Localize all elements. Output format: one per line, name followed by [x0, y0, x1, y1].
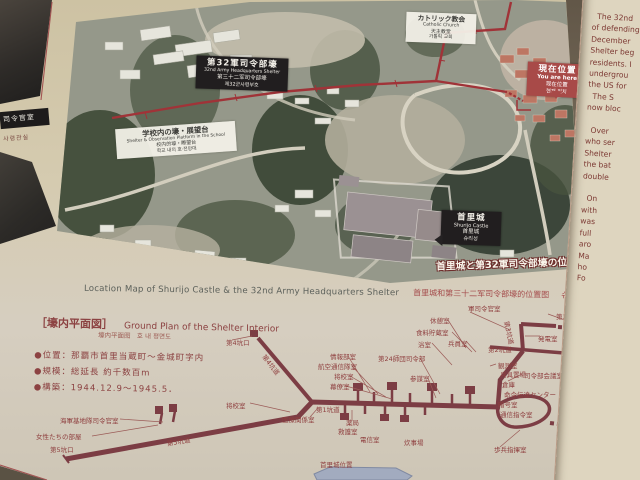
plan-label: 女性たちの部屋	[36, 431, 82, 441]
plan-label: 歩兵指揮室	[494, 444, 527, 454]
hq-shelter-label: 第32軍司令部壕 32nd Army Headquarters Shelter …	[195, 55, 288, 91]
castle-footprint-shape	[314, 467, 412, 480]
church-label-kr: 가톨릭 교회	[408, 34, 474, 42]
plan-label: 海軍基地隊司令官室	[60, 415, 119, 425]
plan-label: 命令伝達センター	[504, 389, 556, 399]
bottom-left-frame-line	[0, 465, 47, 480]
map-caption-cn: 首里城和第三十二军司令部壕的位置图	[413, 288, 549, 299]
plan-label: 休憩室	[430, 315, 450, 325]
plan-label: 炊事場	[404, 437, 424, 447]
plan-label: 第5坑道	[166, 434, 191, 448]
plan-label: 首里城位置	[320, 459, 353, 469]
side-panel-lines: The 32ndof defendingDecemberShelter begr…	[577, 11, 640, 289]
plan-label: 発電室	[538, 333, 558, 343]
castle-label-kr: 슈리성	[443, 235, 499, 243]
left-panel-photo-top	[0, 0, 58, 104]
bottom-left-photo-corner	[0, 466, 46, 480]
plan-label: 第1坑道	[316, 404, 340, 414]
plan-label: 情報部室	[330, 351, 356, 361]
plan-bullet-construction: ●構築：1944.12.9～1945.5．	[34, 380, 204, 399]
map-caption: Location Map of Shurijo Castle & the 32n…	[84, 276, 640, 303]
church-label: カトリック教会 Catholic Church 天主教堂 가톨릭 교회	[406, 12, 477, 44]
plan-label: 司令部会議室	[524, 370, 563, 380]
shuri-castle-label: 首里城 Shurijo Castle 首里城 슈리성	[440, 210, 501, 246]
plan-subtitle: 壕内平面图 호 내 평면도	[98, 329, 171, 341]
plan-label: 医療関係室	[282, 414, 315, 424]
plan-label: 第4坑口	[226, 337, 250, 347]
plan-label: 電信室	[360, 434, 380, 444]
plan-label: 幕僚室	[330, 381, 350, 391]
plan-label: 航空通信隊室	[318, 361, 357, 371]
plan-label: 将校室	[334, 371, 354, 381]
plan-label: 軍司令官室	[468, 303, 501, 313]
plan-label: 第5坑口	[50, 444, 74, 454]
plan-label: 兵具置場	[500, 369, 526, 379]
left-panel-photo-bottom	[0, 148, 58, 248]
signboard-photo: 司令官室 사령관실	[0, 0, 640, 480]
plan-label: 薬局	[346, 417, 359, 427]
side-panel-text-line: Fo	[577, 272, 640, 288]
left-panel-photo-caption-korean: 사령관실	[3, 132, 30, 143]
plan-label: 暗号室	[498, 399, 518, 409]
left-panel-photo-caption: 司令官室	[0, 108, 50, 129]
map-caption-en: Location Map of Shurijo Castle & the 32n…	[84, 284, 399, 298]
plan-label: 第3坑道	[502, 320, 517, 345]
plan-label: 通信指令室	[500, 409, 533, 419]
plan-label: 将校室	[226, 400, 246, 410]
plan-label: 参謀室	[410, 373, 430, 383]
plan-label: 観測室	[498, 360, 518, 370]
plan-label: 第4坑道	[260, 352, 282, 377]
plan-label: 救護室	[338, 426, 358, 436]
plan-label: 第24師団司令部	[378, 353, 425, 363]
plan-label: 第2坑道	[488, 344, 512, 354]
plan-label: 倉庫	[502, 379, 515, 389]
plan-label: 浴室	[418, 339, 431, 349]
plan-label: 兵員室	[448, 338, 468, 348]
plan-bullets: ●位置：那覇市首里当蔵町～金城町字内 ●規模：総延長 約千数百m ●構築：194…	[34, 348, 205, 399]
plan-label: 食料貯蔵室	[416, 327, 449, 337]
